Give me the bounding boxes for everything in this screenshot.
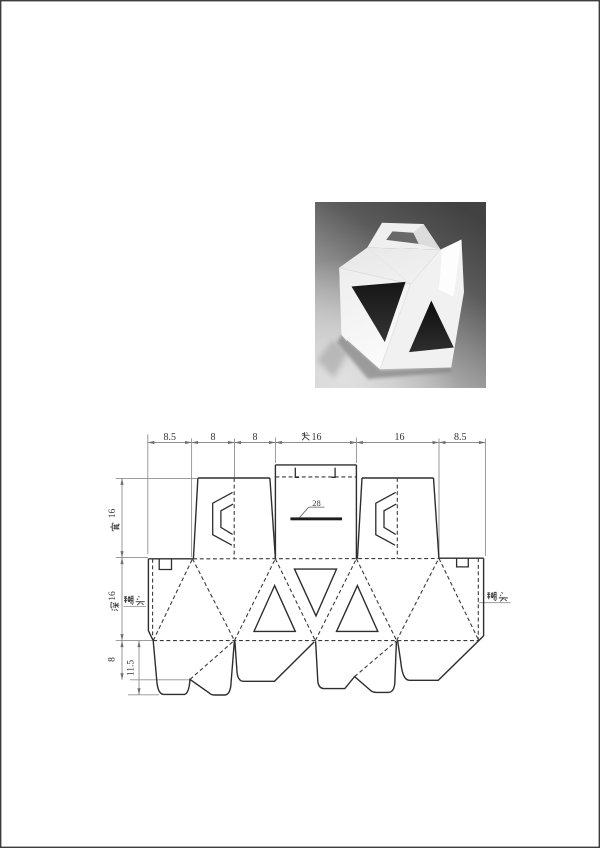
svg-text:8.5: 8.5 [454,432,467,443]
svg-text:16: 16 [395,432,405,443]
svg-text:8: 8 [211,432,216,443]
svg-text:16: 16 [108,509,118,519]
svg-text:28: 28 [312,498,321,508]
svg-text:8: 8 [108,657,118,662]
svg-text:16: 16 [312,432,322,443]
svg-text:16: 16 [108,591,118,601]
svg-text:8: 8 [253,432,258,443]
svg-text:11.5: 11.5 [127,660,137,677]
svg-text:8.5: 8.5 [163,432,176,443]
